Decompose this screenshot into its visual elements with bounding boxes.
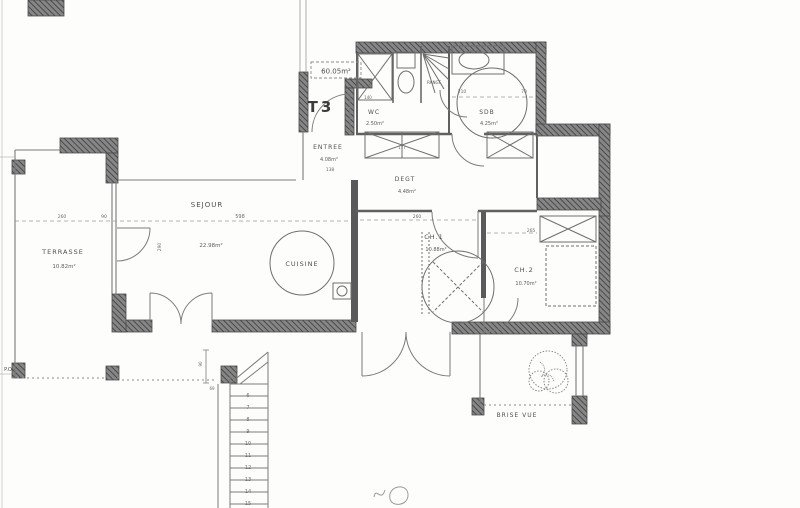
terrace-post [12,363,25,378]
room-area-terrasse: 10.82m² [52,263,75,270]
wall-left [60,138,118,153]
terrace-door [117,228,150,261]
room-area-ch2: 10.70m² [515,281,536,287]
dim-label: 90 [101,214,107,220]
room-area-ch1: 10.88m² [425,247,446,253]
stair-step-number: 13 [245,477,251,483]
room-label-ch2: CH.2 [514,266,534,274]
brise-vue-screen [576,345,583,396]
dim-label: 210 [458,89,467,95]
floorplan-page: T3 60.05m² TERRASSE 10.82m² SEJOUR 22.98… [0,0,800,508]
dim-label: 265 [527,228,536,234]
closet-sdb [487,132,533,158]
stair-step-number: 6 [246,393,249,399]
scan-artifacts [0,0,14,508]
room-label-ch1: CH.1 [424,233,444,241]
stair-step-number: 7 [246,405,249,411]
dim-label: 138 [326,167,335,173]
sejour-window [112,182,116,294]
stair-step-number: 15 [245,501,251,507]
room-area-sejour: 22.98m² [199,242,222,249]
partitions [356,46,537,211]
po-label: P.O [4,367,12,373]
room-area-degt: 4.48m² [398,189,416,195]
ch2-bed [546,246,596,306]
dim-label: 290 [157,243,163,252]
room-area-sdb: 4.25m² [480,121,498,127]
sejour-double-door [150,293,212,324]
room-area-wc: 2.50m² [366,121,384,127]
dim-label: 90 [198,361,203,367]
room-label-sejour: SEJOUR [191,201,223,209]
stair-step-number: 14 [245,489,251,495]
toilet [397,52,415,93]
room-label-terrasse: TERRASSE [41,248,84,256]
wall-top-left-block [28,0,64,16]
tree [529,351,568,393]
shelving-fan [423,54,449,93]
signature-scribble [374,487,408,504]
dim-label: 69 [209,386,215,391]
unit-label: T3 [308,98,335,116]
room-label-wc: WC [368,109,380,116]
room-label-rangement: RANGT [427,80,441,85]
dim-label: 70 [521,89,527,95]
patio-post [572,334,587,346]
room-label-entree: ENTREE [313,144,343,151]
dim-label: 260 [413,214,422,220]
sdb-door [452,134,484,166]
closet-entry [358,54,392,100]
dim-label: 177 [398,145,406,150]
stair-step-number: 8 [246,417,249,423]
stair-step-number: 11 [245,453,251,459]
floorplan-svg: T3 60.05m² TERRASSE 10.82m² SEJOUR 22.98… [0,0,800,508]
patio-post [572,396,587,424]
dim-label: 140 [364,95,372,100]
closet-ch2 [540,216,596,242]
terrace-post [12,160,25,174]
kitchen-appliance [333,283,351,299]
sdb-turning-circle [457,68,527,138]
wall-top [356,42,546,53]
room-area-entree: 4.08m² [320,157,338,163]
stair-step-number: 10 [245,441,251,447]
wall-bottom-right [452,322,610,334]
total-area-label: 60.05m² [321,68,351,76]
dim-label: 598 [235,214,245,220]
room-label-sdb: SDB [479,109,495,116]
room-label-cuisine: CUISINE [285,260,318,268]
interior-walls [351,180,486,322]
room-label-degt: DEGT [395,176,416,183]
stair-step-number: 12 [245,465,251,471]
thin-lines [15,0,583,404]
patio-double-door [362,332,450,376]
brise-vue-label: BRISE VUE [497,412,538,419]
fence-post [472,398,484,415]
dim-label: 260 [58,214,67,220]
stair-step-number: 9 [246,429,249,435]
